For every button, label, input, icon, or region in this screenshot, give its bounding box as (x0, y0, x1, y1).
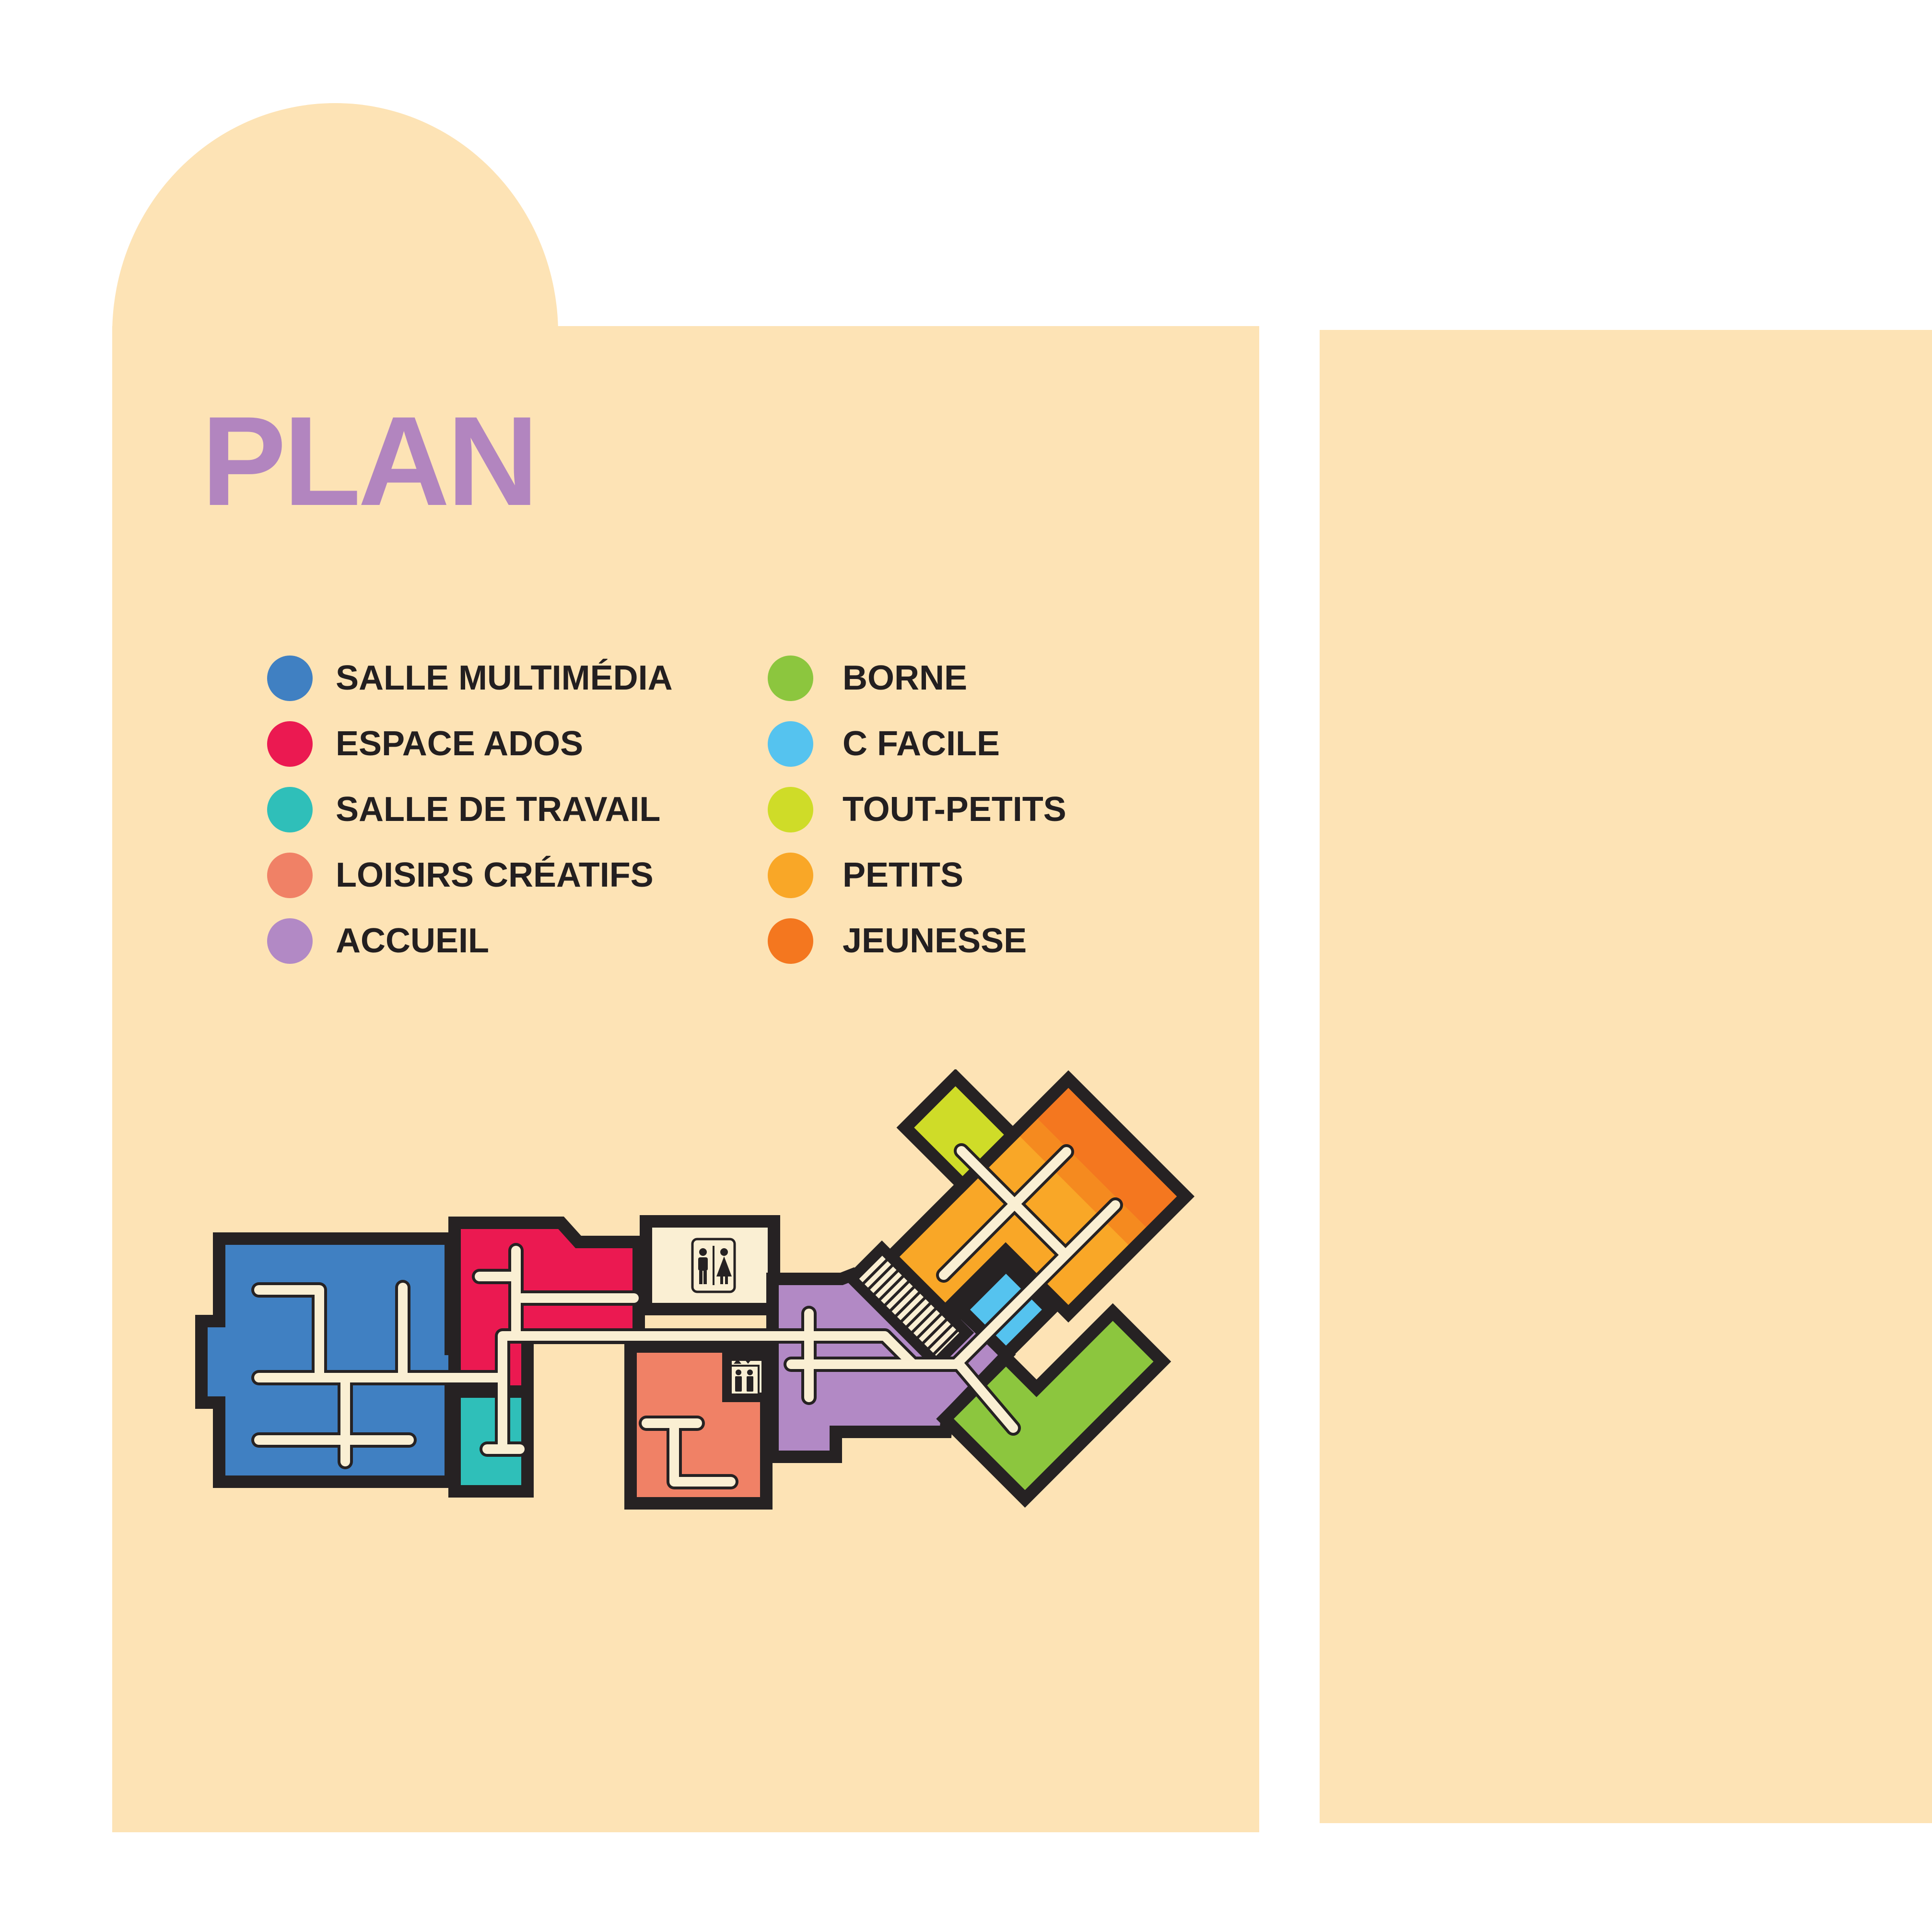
legend-label: BORNE (843, 656, 967, 701)
legend-dot-borne (768, 656, 813, 701)
legend-label: ACCUEIL (336, 918, 489, 964)
page-title: PLAN (201, 398, 536, 525)
legend-label: ESPACE ADOS (336, 721, 583, 767)
legend-label: SALLE MULTIMÉDIA (336, 656, 673, 701)
legend-dot-c-facile (768, 721, 813, 767)
side-panel (1320, 330, 1932, 1823)
floor-plan (192, 1069, 1228, 1510)
legend-dot-salle-de-travail (267, 787, 313, 832)
legend-dot-salle-multimedia (267, 656, 313, 701)
legend-label: JEUNESSE (843, 918, 1027, 964)
room-espace-ados (455, 1223, 639, 1392)
legend-label: C FACILE (843, 721, 1000, 767)
legend-label: PETITS (843, 853, 963, 898)
legend-label: TOUT-PETITS (843, 787, 1066, 832)
legend-label: LOISIRS CRÉATIFS (336, 853, 654, 898)
legend-label: SALLE DE TRAVAIL (336, 787, 660, 832)
legend-dot-loisirs-creatifs (267, 853, 313, 898)
signage-poster: PLAN SALLE MULTIMÉDIA ESPACE ADOS SALLE … (0, 0, 1932, 1932)
wc-sign-icon (692, 1239, 735, 1292)
legend-dot-espace-ados (267, 721, 313, 767)
legend-dot-jeunesse (768, 918, 813, 964)
legend-dot-petits (768, 853, 813, 898)
legend-dot-accueil (267, 918, 313, 964)
legend-dot-tout-petits (768, 787, 813, 832)
